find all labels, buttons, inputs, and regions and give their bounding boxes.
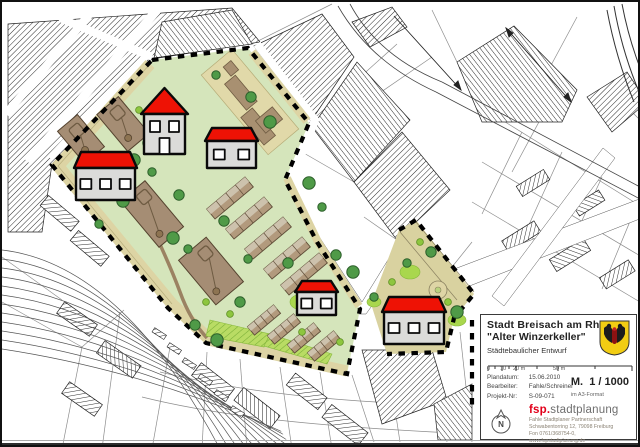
office-name: Fahle Stadtplaner Partnerschaft xyxy=(529,417,631,424)
tree xyxy=(219,216,229,226)
house-southeast xyxy=(382,297,446,344)
bush xyxy=(227,311,234,318)
tree xyxy=(303,177,315,189)
north-arrow-icon: N xyxy=(488,408,514,436)
bush xyxy=(299,329,306,336)
fsp-logo: fsp.stadtplanung xyxy=(529,404,631,416)
plan-meta: Plandatum: 15.06.2010 Bearbeiter: Fahle/… xyxy=(487,373,631,401)
svg-text:N: N xyxy=(498,420,504,429)
tree xyxy=(264,116,276,128)
tree xyxy=(347,266,359,278)
tree xyxy=(451,306,463,318)
plan-format-note: im A3-Format xyxy=(571,391,629,399)
site-plan-sheet: Stadt Breisach am Rhein "Alter Winzerkel… xyxy=(0,0,640,447)
tree xyxy=(403,259,411,267)
sheet-edge-line xyxy=(2,440,640,441)
house-south xyxy=(295,281,338,315)
tree xyxy=(244,255,252,263)
tree xyxy=(331,250,341,260)
plan-number: S-09-071 xyxy=(529,393,555,400)
house-west xyxy=(74,152,137,200)
bush xyxy=(445,299,452,306)
scale-tick-0: 0 xyxy=(487,366,490,372)
tree xyxy=(426,247,436,257)
tree xyxy=(211,334,223,346)
office-brand: fsp.stadtplanung Fahle Stadtplaner Partn… xyxy=(529,404,631,445)
bush xyxy=(337,339,344,346)
tree xyxy=(283,258,293,268)
scale-bar: 0 10 20 m 50 m xyxy=(487,359,631,372)
scale-tick-10: 10 xyxy=(500,366,506,372)
bush xyxy=(417,239,424,246)
plan-scale: M. 1 / 1000 im A3-Format xyxy=(571,374,629,400)
tree xyxy=(184,245,192,253)
tree xyxy=(190,320,200,330)
breisach-coat-of-arms xyxy=(598,319,631,357)
plan-author: Fahle/Schreiner xyxy=(529,383,573,390)
tree xyxy=(370,293,378,301)
tree xyxy=(235,297,245,307)
tree xyxy=(148,168,156,176)
bush xyxy=(389,279,396,286)
plaza-roundabout-center xyxy=(435,287,441,293)
house-center xyxy=(205,128,258,168)
scale-tick-20: 20 m xyxy=(513,366,525,372)
tree xyxy=(318,203,326,211)
sheet-edge-shadow xyxy=(2,443,640,447)
bush xyxy=(203,299,210,306)
tree xyxy=(95,220,103,228)
tree xyxy=(167,232,179,244)
scale-tick-50: 50 m xyxy=(553,366,565,372)
tree xyxy=(174,190,184,200)
plan-date: 15.06.2010 xyxy=(529,374,561,381)
office-street: Schwabentorring 12, 79098 Freiburg xyxy=(529,424,631,431)
tree xyxy=(246,92,256,102)
title-block: Stadt Breisach am Rhein "Alter Winzerkel… xyxy=(480,314,637,440)
tree xyxy=(212,71,220,79)
